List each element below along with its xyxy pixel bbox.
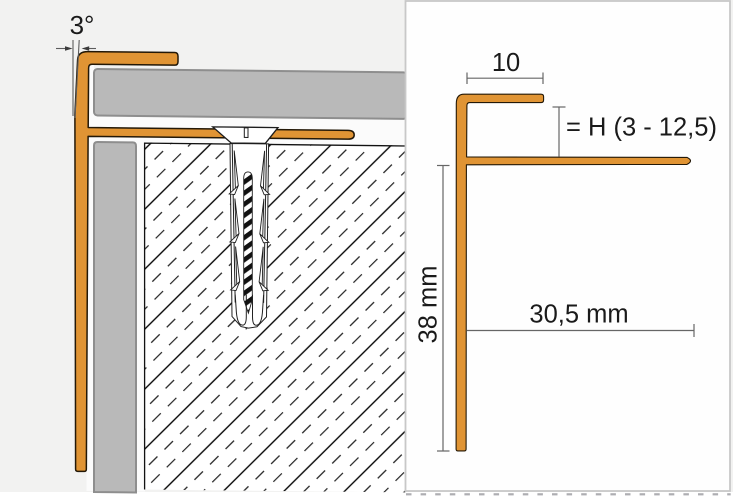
svg-text:10: 10	[492, 49, 520, 77]
svg-text:3°: 3°	[70, 10, 95, 40]
svg-text:= H (3 - 12,5): = H (3 - 12,5)	[566, 114, 717, 142]
svg-text:30,5 mm: 30,5 mm	[529, 301, 628, 329]
svg-text:38 mm: 38 mm	[415, 266, 443, 344]
